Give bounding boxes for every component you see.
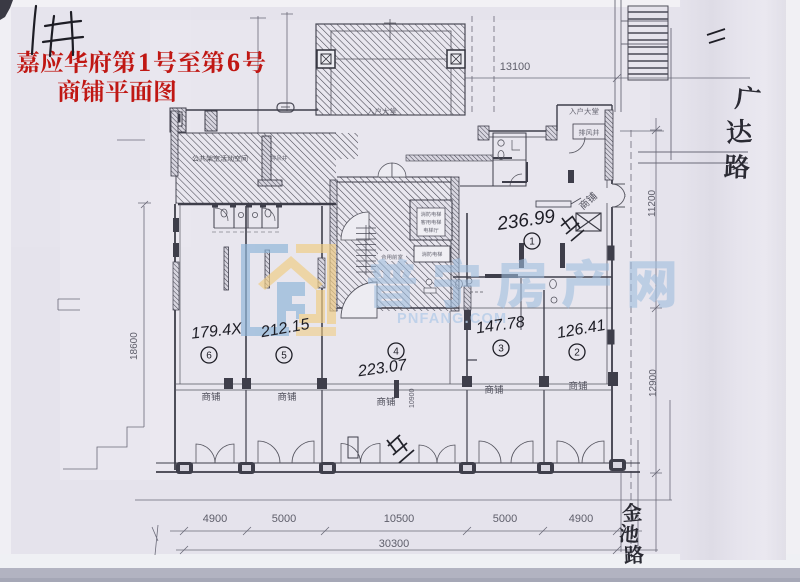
svg-text:3: 3 — [498, 344, 504, 355]
svg-text:4900: 4900 — [203, 513, 227, 525]
svg-text:6: 6 — [227, 48, 240, 77]
svg-text:12900: 12900 — [648, 369, 659, 397]
svg-text:1: 1 — [529, 237, 535, 248]
svg-text:4900: 4900 — [569, 513, 593, 525]
svg-text:4: 4 — [393, 347, 399, 358]
svg-text:13100: 13100 — [500, 61, 531, 73]
svg-text:10900: 10900 — [409, 388, 416, 408]
svg-text:1: 1 — [138, 48, 151, 77]
svg-text:10500: 10500 — [384, 513, 415, 525]
svg-text:5: 5 — [281, 351, 287, 362]
svg-text:11200: 11200 — [647, 189, 658, 217]
svg-text:5000: 5000 — [272, 513, 296, 525]
svg-text:18600: 18600 — [129, 332, 140, 360]
svg-text:6: 6 — [206, 351, 212, 362]
svg-text:30300: 30300 — [379, 538, 410, 550]
svg-text:5000: 5000 — [493, 513, 517, 525]
svg-text:2: 2 — [574, 348, 580, 359]
